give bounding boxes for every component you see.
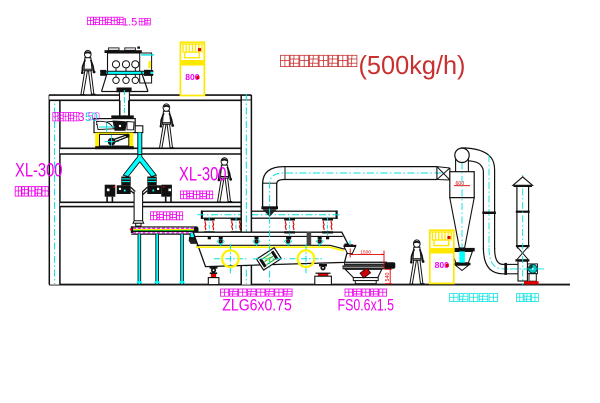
- svg-text:540: 540: [385, 273, 391, 282]
- svg-text:XL-300: XL-300: [179, 163, 227, 185]
- svg-text:FS0.6x1.5: FS0.6x1.5: [338, 296, 395, 315]
- svg-text:(500kg/h): (500kg/h): [359, 50, 466, 80]
- svg-text:600: 600: [456, 181, 465, 187]
- svg-text:ZLG6x0.75: ZLG6x0.75: [222, 296, 291, 315]
- svg-text:50: 50: [88, 111, 101, 123]
- svg-text:1.5: 1.5: [122, 16, 137, 28]
- svg-text:1500: 1500: [360, 249, 371, 255]
- svg-text:3: 3: [78, 112, 84, 124]
- svg-text:XL-300: XL-300: [15, 160, 63, 182]
